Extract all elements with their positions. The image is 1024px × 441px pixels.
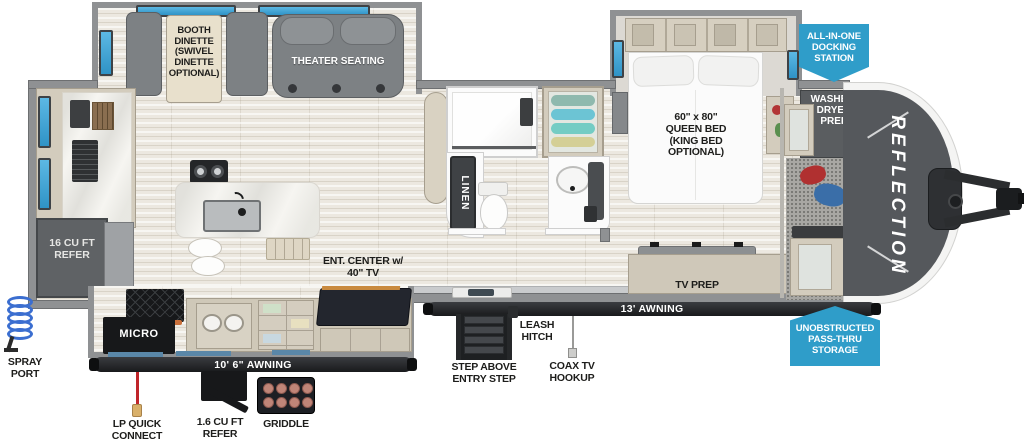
bath-pocket-door	[424, 92, 448, 204]
toilet	[480, 194, 508, 230]
rear-window-lower	[38, 158, 51, 210]
entry-step-label: STEP ABOVE ENTRY STEP	[444, 362, 524, 386]
bath-partition-left	[448, 228, 506, 235]
main-awning-label: 13' AWNING	[621, 303, 684, 315]
linen-label: LINEN	[456, 163, 470, 223]
spray-port-label: SPRAY PORT	[0, 357, 50, 381]
griddle-burner-icon	[276, 397, 287, 408]
clothes-icon	[551, 137, 595, 147]
ent-center-accent	[322, 286, 400, 290]
cupholder-icon	[332, 84, 341, 93]
slide-accent-strip	[176, 351, 231, 356]
bottom-wall-rear	[28, 300, 94, 309]
entry-door-threshold	[468, 289, 494, 296]
bath-wall-stub	[600, 228, 610, 242]
ent-center-label: ENT. CENTER w/ 40" TV	[316, 256, 410, 280]
countertop-appliance-icon	[72, 140, 98, 182]
coax-connector-icon	[568, 348, 577, 358]
shower-glass-door	[452, 146, 536, 149]
lp-line-icon	[136, 372, 139, 406]
ent-center-cabinet	[320, 328, 410, 352]
griddle-burner-icon	[263, 397, 274, 408]
refrigerator-side-panel	[104, 222, 134, 294]
griddle-burner-icon	[276, 383, 287, 394]
island-burner-unit	[190, 160, 228, 184]
kitchen-awning-label: 10' 6" AWNING	[214, 359, 292, 371]
sink-bowl	[224, 314, 244, 332]
jack-wheel-icon	[948, 194, 963, 209]
cabinet-compartment	[632, 24, 654, 46]
burner-icon	[211, 165, 224, 178]
pantry	[258, 300, 314, 350]
pillow	[632, 55, 694, 87]
pantry-item-icon	[291, 319, 309, 328]
cupholder-icon	[376, 84, 385, 93]
rear-window-upper	[38, 96, 51, 148]
pantry-item-icon	[263, 304, 281, 313]
awning-end-cap	[423, 303, 433, 315]
booth-dinette-label: BOOTH DINETTE (SWIVEL DINETTE OPTIONAL)	[166, 26, 222, 79]
sink-bowl	[202, 314, 222, 332]
spray-nozzle-base-icon	[4, 348, 18, 352]
slideout-side-window	[99, 30, 113, 76]
entry-steps	[456, 314, 512, 360]
front-cabinet-glass	[789, 109, 809, 151]
cabinet-compartment	[674, 24, 696, 46]
leash-hitch-icon	[508, 306, 518, 318]
docking-station-badge: ALL-IN-ONE DOCKING STATION	[799, 24, 869, 82]
cabinet-compartment	[714, 24, 736, 46]
tv-bracket-icon	[734, 242, 743, 247]
step-tread	[464, 346, 504, 354]
sink-faucet-icon	[570, 186, 575, 191]
utensil-rack-icon	[266, 238, 310, 260]
bar-stool	[191, 256, 225, 276]
step-tread	[464, 336, 504, 344]
coffee-maker-icon	[70, 100, 90, 128]
coax-hookup-label: COAX TV HOOKUP	[541, 361, 603, 385]
griddle-burner-icon	[289, 397, 300, 408]
slide-accent-strip	[272, 350, 310, 355]
bedside-cabinet-left	[612, 92, 628, 134]
lp-nozzle-icon	[132, 404, 142, 417]
shower-fixture-icon	[520, 98, 533, 126]
step-tread	[464, 326, 504, 334]
tv-bracket-icon	[692, 242, 701, 247]
rv-floorplan: BOOTH DINETTE (SWIVEL DINETTE OPTIONAL) …	[0, 0, 1024, 441]
brand-graphic: REFLECTION	[882, 111, 908, 281]
kitchen-awning: 10' 6" AWNING	[94, 357, 412, 372]
theater-headrest-left	[280, 17, 334, 45]
faucet-icon	[238, 208, 246, 216]
coax-cable-icon	[572, 316, 574, 350]
leash-hitch-label: LEASH HITCH	[511, 320, 563, 344]
microwave-label: MICRO	[103, 328, 175, 340]
front-storage-glass	[798, 244, 832, 290]
dinette-bench-right	[226, 12, 268, 96]
bedroom-window-left	[612, 40, 624, 78]
lp-quick-connect-label: LP QUICK CONNECT	[95, 419, 179, 441]
wine-rack-icon	[92, 102, 114, 130]
griddle	[257, 377, 315, 414]
clothes-icon	[551, 95, 595, 106]
cupholder-icon	[288, 84, 297, 93]
clothes-icon	[551, 109, 595, 120]
burner-icon	[194, 165, 207, 178]
storage-shelf-icon	[792, 226, 848, 238]
cabinet-compartment	[756, 24, 778, 46]
tv-bracket-icon	[650, 242, 659, 247]
awning-end-cap	[871, 303, 881, 315]
tv-prep-label: TV PREP	[662, 280, 732, 292]
griddle-burner-icon	[263, 383, 274, 394]
refrigerator-label: 16 CU FT REFER	[37, 238, 107, 262]
hitch-stub	[1018, 193, 1024, 204]
pillow	[697, 55, 759, 87]
awning-end-cap	[407, 358, 417, 371]
griddle-label: GRIDDLE	[258, 419, 314, 431]
awning-end-cap	[89, 358, 99, 371]
dinette-bench-left	[126, 12, 162, 96]
vanity-accessory-icon	[584, 206, 597, 222]
bedroom-window-right	[787, 50, 799, 80]
theater-headrest-right	[340, 17, 396, 45]
ent-center-tv	[316, 288, 412, 326]
clothes-icon	[551, 123, 595, 134]
griddle-burner-icon	[302, 383, 313, 394]
bar-stool	[188, 238, 222, 258]
step-tread	[464, 316, 504, 324]
theater-seating-label: THEATER SEATING	[282, 56, 394, 67]
pantry-item-icon	[263, 334, 281, 343]
queen-bed-label: 60" x 80" QUEEN BED (KING BED OPTIONAL)	[649, 112, 743, 159]
outside-refer-label: 1.6 CU FT REFER	[186, 417, 254, 441]
griddle-burner-icon	[302, 397, 313, 408]
griddle-burner-icon	[289, 383, 300, 394]
